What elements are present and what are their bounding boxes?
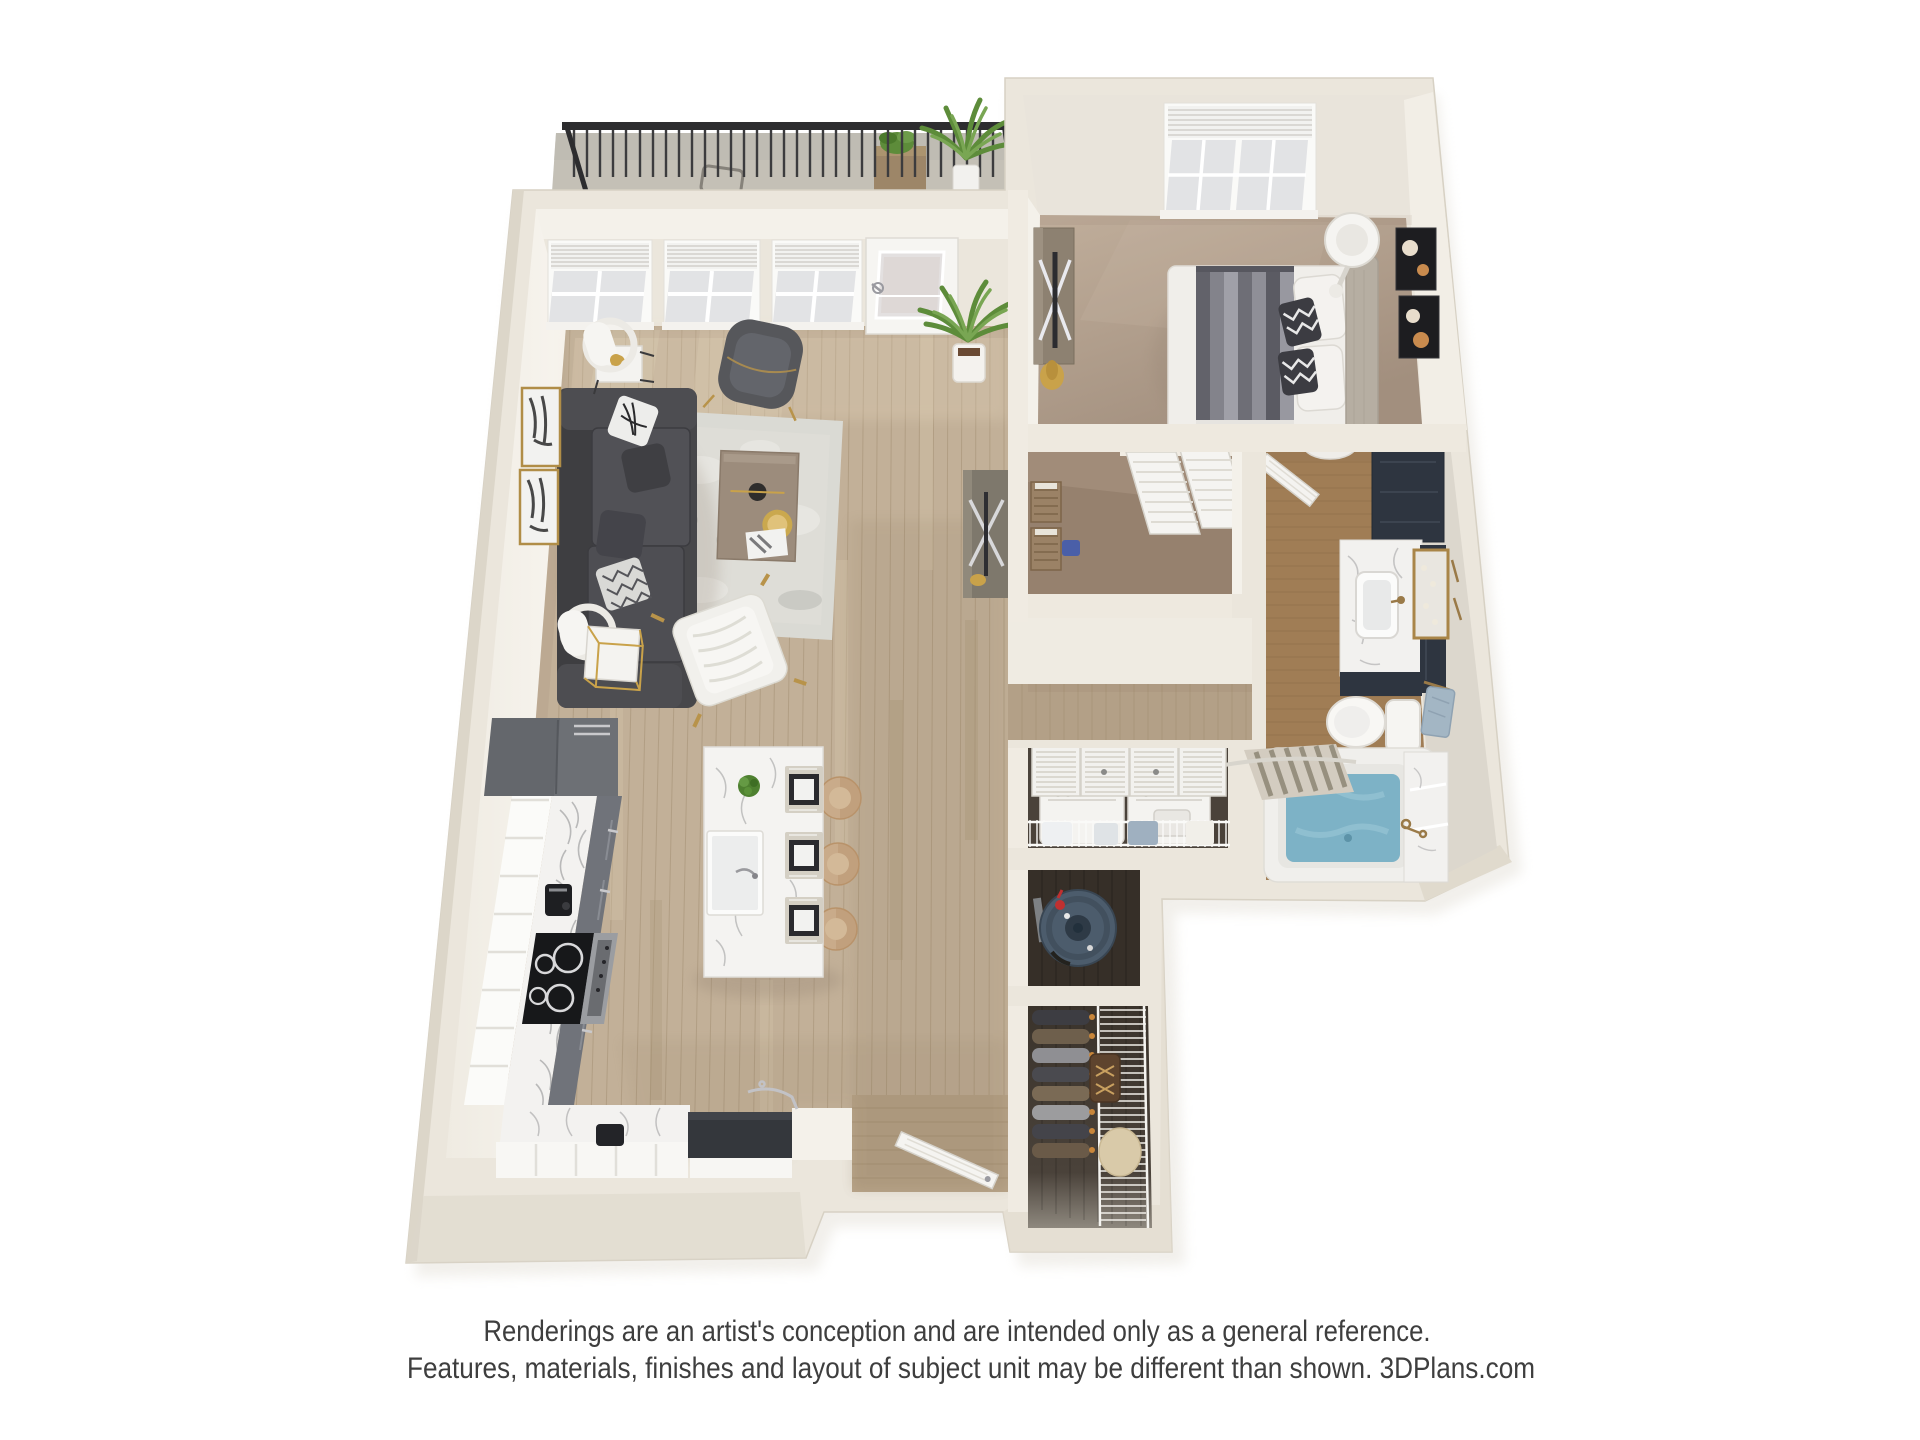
svg-text:Renderings are an artist's con: Renderings are an artist's conception an… <box>484 1315 1431 1348</box>
svg-text:Features, materials, finishes: Features, materials, finishes and layout… <box>407 1352 1535 1385</box>
